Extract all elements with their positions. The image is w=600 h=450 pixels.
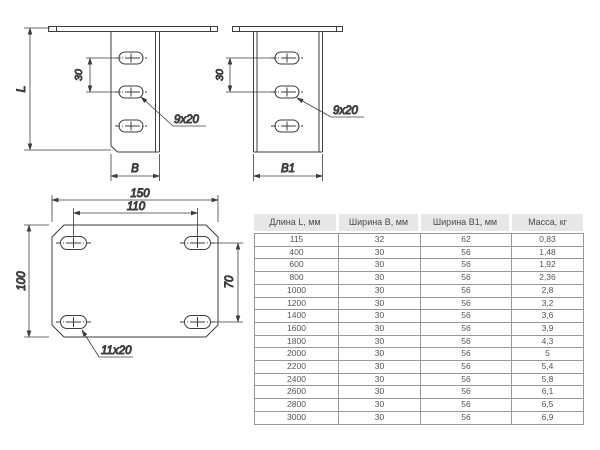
- table-cell: 30: [339, 322, 421, 335]
- table-cell: 30: [339, 361, 421, 374]
- table-row: 100030562,8: [255, 284, 584, 297]
- table-cell: 56: [421, 348, 512, 361]
- spec-table-header-cell: Длина L, мм: [254, 214, 336, 231]
- table-cell: 56: [421, 322, 512, 335]
- table-cell: 56: [421, 399, 512, 412]
- table-row: 80030562,36: [255, 272, 584, 285]
- table-cell: 56: [421, 297, 512, 310]
- dim-label-30: 30: [73, 69, 85, 81]
- dim-label-100: 100: [16, 271, 28, 291]
- table-cell: 56: [421, 259, 512, 272]
- table-cell: 30: [339, 284, 421, 297]
- table-cell: 2,8: [512, 284, 584, 297]
- table-cell: 1000: [255, 284, 339, 297]
- dim-hole-pitch: [86, 58, 121, 92]
- front-view-b1: 30 9x20 B1: [214, 27, 364, 182]
- table-cell: 6,1: [512, 386, 584, 399]
- table-cell: 4,3: [512, 335, 584, 348]
- top-plate-outline: [233, 27, 343, 32]
- table-cell: 5: [512, 348, 584, 361]
- table-cell: 3000: [255, 411, 339, 424]
- table-row: 160030563,9: [255, 322, 584, 335]
- spec-table: Длина L, мм Ширина B, мм Ширина B1, мм М…: [254, 214, 583, 425]
- table-cell: 600: [255, 259, 339, 272]
- page: L 30 9x20 B: [0, 0, 600, 450]
- table-row: 120030563,2: [255, 297, 584, 310]
- table-cell: 2000: [255, 348, 339, 361]
- table-cell: 56: [421, 272, 512, 285]
- table-cell: 30: [339, 386, 421, 399]
- table-cell: 30: [339, 348, 421, 361]
- spec-table-header-cell: Ширина B1, мм: [421, 214, 509, 231]
- table-cell: 3,2: [512, 297, 584, 310]
- dim-length-l: [24, 28, 111, 150]
- spec-table-body: 11532620,8340030561,4860030561,928003056…: [254, 233, 584, 425]
- table-cell: 400: [255, 246, 339, 259]
- table-row: 200030565: [255, 348, 584, 361]
- table-cell: 56: [421, 284, 512, 297]
- table-cell: 115: [255, 234, 339, 247]
- table-cell: 30: [339, 335, 421, 348]
- slot-size-label: 9x20: [174, 114, 200, 126]
- table-row: 180030564,3: [255, 335, 584, 348]
- table-cell: 1,92: [512, 259, 584, 272]
- table-cell: 30: [339, 310, 421, 323]
- table-row: 140030563,6: [255, 310, 584, 323]
- spec-table-header: Длина L, мм Ширина B, мм Ширина B1, мм М…: [254, 214, 583, 231]
- table-cell: 56: [421, 411, 512, 424]
- table-cell: 30: [339, 272, 421, 285]
- slot-size-label: 9x20: [333, 105, 359, 117]
- table-cell: 56: [421, 373, 512, 386]
- dim-label-30: 30: [214, 69, 226, 81]
- table-cell: 5,8: [512, 373, 584, 386]
- table-cell: 6,9: [512, 411, 584, 424]
- top-plate-outline: [49, 27, 218, 32]
- table-row: 11532620,83: [255, 234, 584, 247]
- table-cell: 1400: [255, 310, 339, 323]
- table-cell: 6,5: [512, 399, 584, 412]
- table-cell: 3,6: [512, 310, 584, 323]
- table-cell: 1600: [255, 322, 339, 335]
- dim-label-150: 150: [130, 188, 150, 200]
- table-cell: 2800: [255, 399, 339, 412]
- table-row: 40030561,48: [255, 246, 584, 259]
- plan-view: 150 110 100 70 11x: [16, 188, 243, 357]
- table-cell: 32: [339, 234, 421, 247]
- table-cell: 56: [421, 246, 512, 259]
- table-cell: 30: [339, 411, 421, 424]
- front-view-b: L 30 9x20 B: [14, 27, 218, 182]
- table-cell: 56: [421, 310, 512, 323]
- dim-label-110: 110: [127, 201, 146, 213]
- table-cell: 2,36: [512, 272, 584, 285]
- table-cell: 2200: [255, 361, 339, 374]
- table-cell: 1,48: [512, 246, 584, 259]
- table-cell: 30: [339, 259, 421, 272]
- table-row: 60030561,92: [255, 259, 584, 272]
- table-cell: 30: [339, 246, 421, 259]
- table-row: 280030566,5: [255, 399, 584, 412]
- table-row: 220030565,4: [255, 361, 584, 374]
- table-cell: 0,83: [512, 234, 584, 247]
- table-cell: 30: [339, 297, 421, 310]
- table-row: 300030566,9: [255, 411, 584, 424]
- base-plate-outline: [52, 225, 218, 337]
- dim-label-b: B: [131, 163, 139, 175]
- table-cell: 3,9: [512, 322, 584, 335]
- slot-size-label: 11x20: [101, 345, 132, 357]
- table-cell: 1200: [255, 297, 339, 310]
- dim-label-b1: B1: [281, 163, 295, 175]
- spec-table-header-cell: Масса, кг: [512, 214, 583, 231]
- table-cell: 5,4: [512, 361, 584, 374]
- table-cell: 56: [421, 361, 512, 374]
- table-cell: 800: [255, 272, 339, 285]
- table-cell: 2600: [255, 386, 339, 399]
- table-cell: 2400: [255, 373, 339, 386]
- dim-hole-pitch: [226, 58, 277, 92]
- table-cell: 30: [339, 399, 421, 412]
- dim-label-70: 70: [224, 275, 236, 288]
- slot-holes: [56, 237, 215, 329]
- table-row: 240030565,8: [255, 373, 584, 386]
- dim-label-l: L: [14, 86, 28, 93]
- table-cell: 62: [421, 234, 512, 247]
- table-cell: 56: [421, 386, 512, 399]
- table-row: 260030566,1: [255, 386, 584, 399]
- table-cell: 56: [421, 335, 512, 348]
- table-cell: 1800: [255, 335, 339, 348]
- table-cell: 30: [339, 373, 421, 386]
- spec-table-header-cell: Ширина B, мм: [339, 214, 418, 231]
